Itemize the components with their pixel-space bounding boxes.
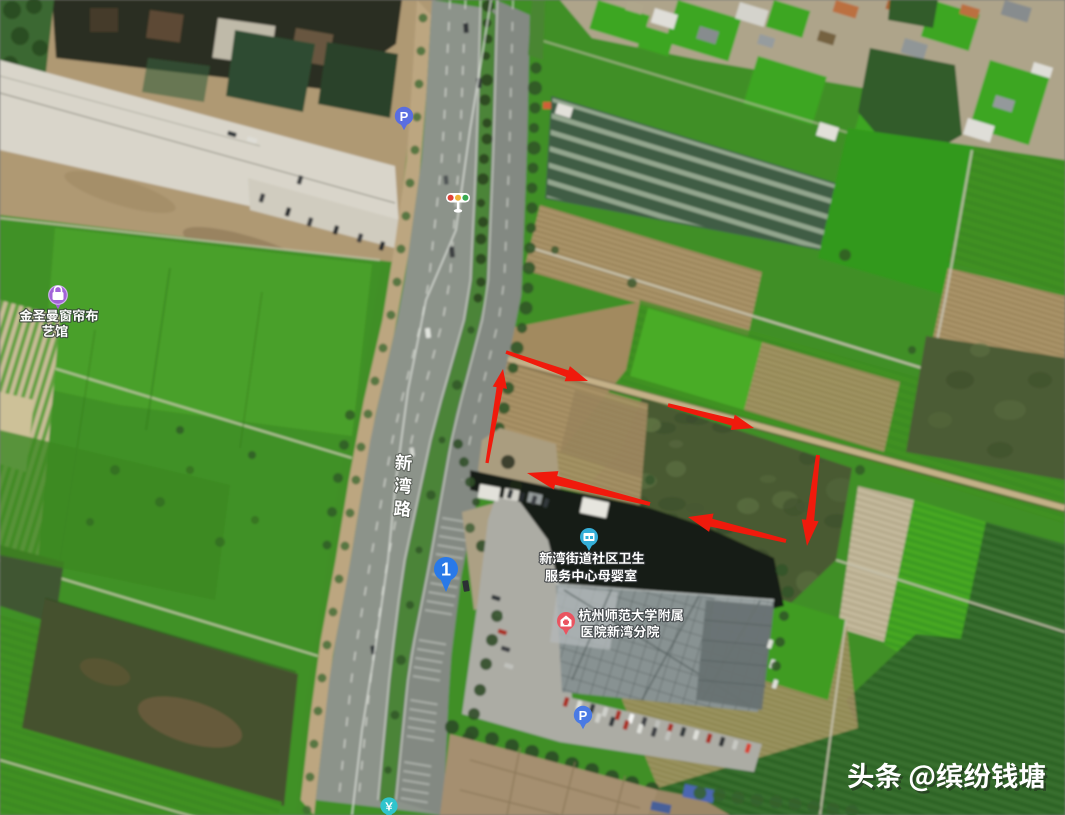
svg-text:P: P: [579, 708, 588, 723]
svg-text:1: 1: [441, 560, 451, 580]
svg-text:P: P: [400, 109, 409, 124]
